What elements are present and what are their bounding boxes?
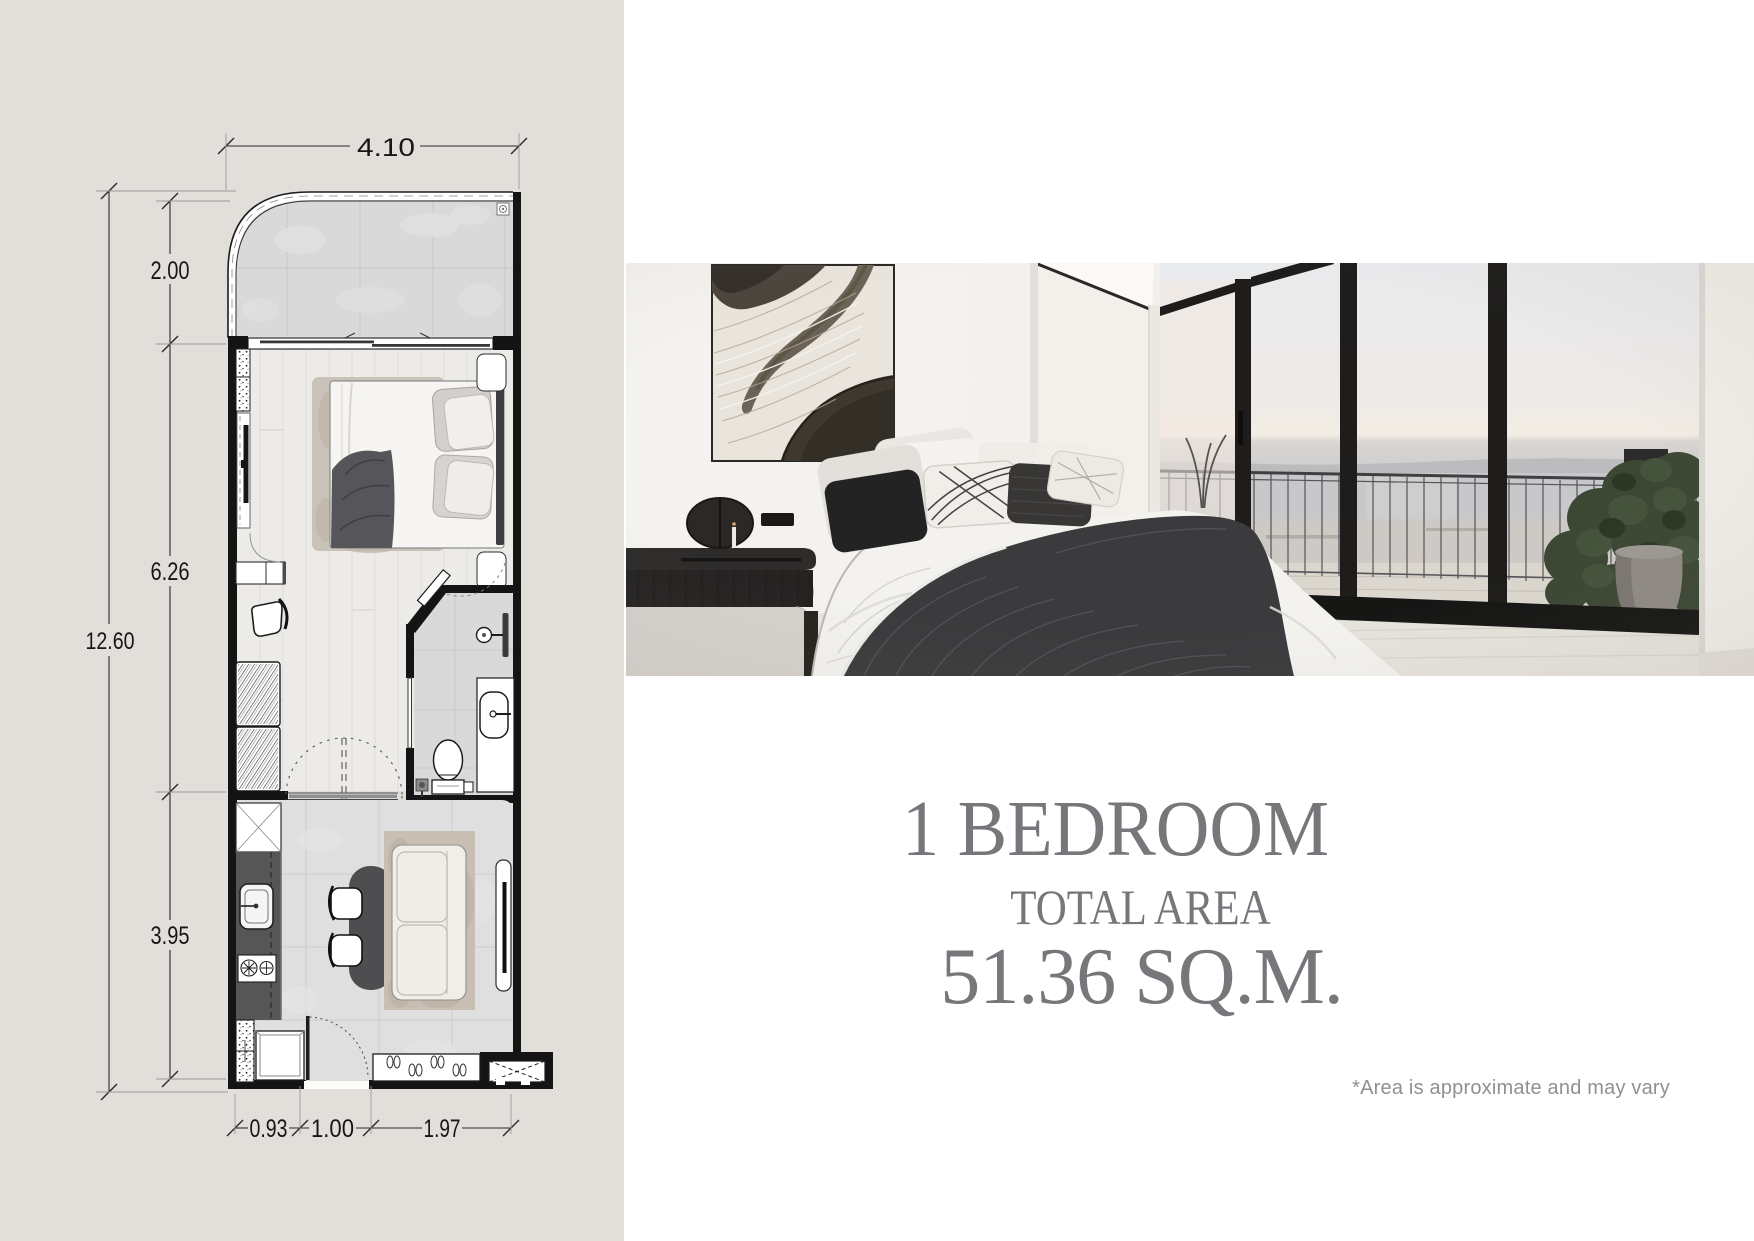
svg-text:1.97: 1.97: [424, 1115, 461, 1143]
svg-text:6.26: 6.26: [151, 558, 190, 586]
svg-text:1.00: 1.00: [311, 1115, 354, 1143]
svg-text:12.60: 12.60: [86, 628, 135, 655]
svg-text:0.93: 0.93: [250, 1115, 288, 1143]
svg-text:4.10: 4.10: [357, 134, 415, 162]
svg-text:3.95: 3.95: [151, 922, 190, 950]
svg-text:2.00: 2.00: [151, 257, 190, 285]
